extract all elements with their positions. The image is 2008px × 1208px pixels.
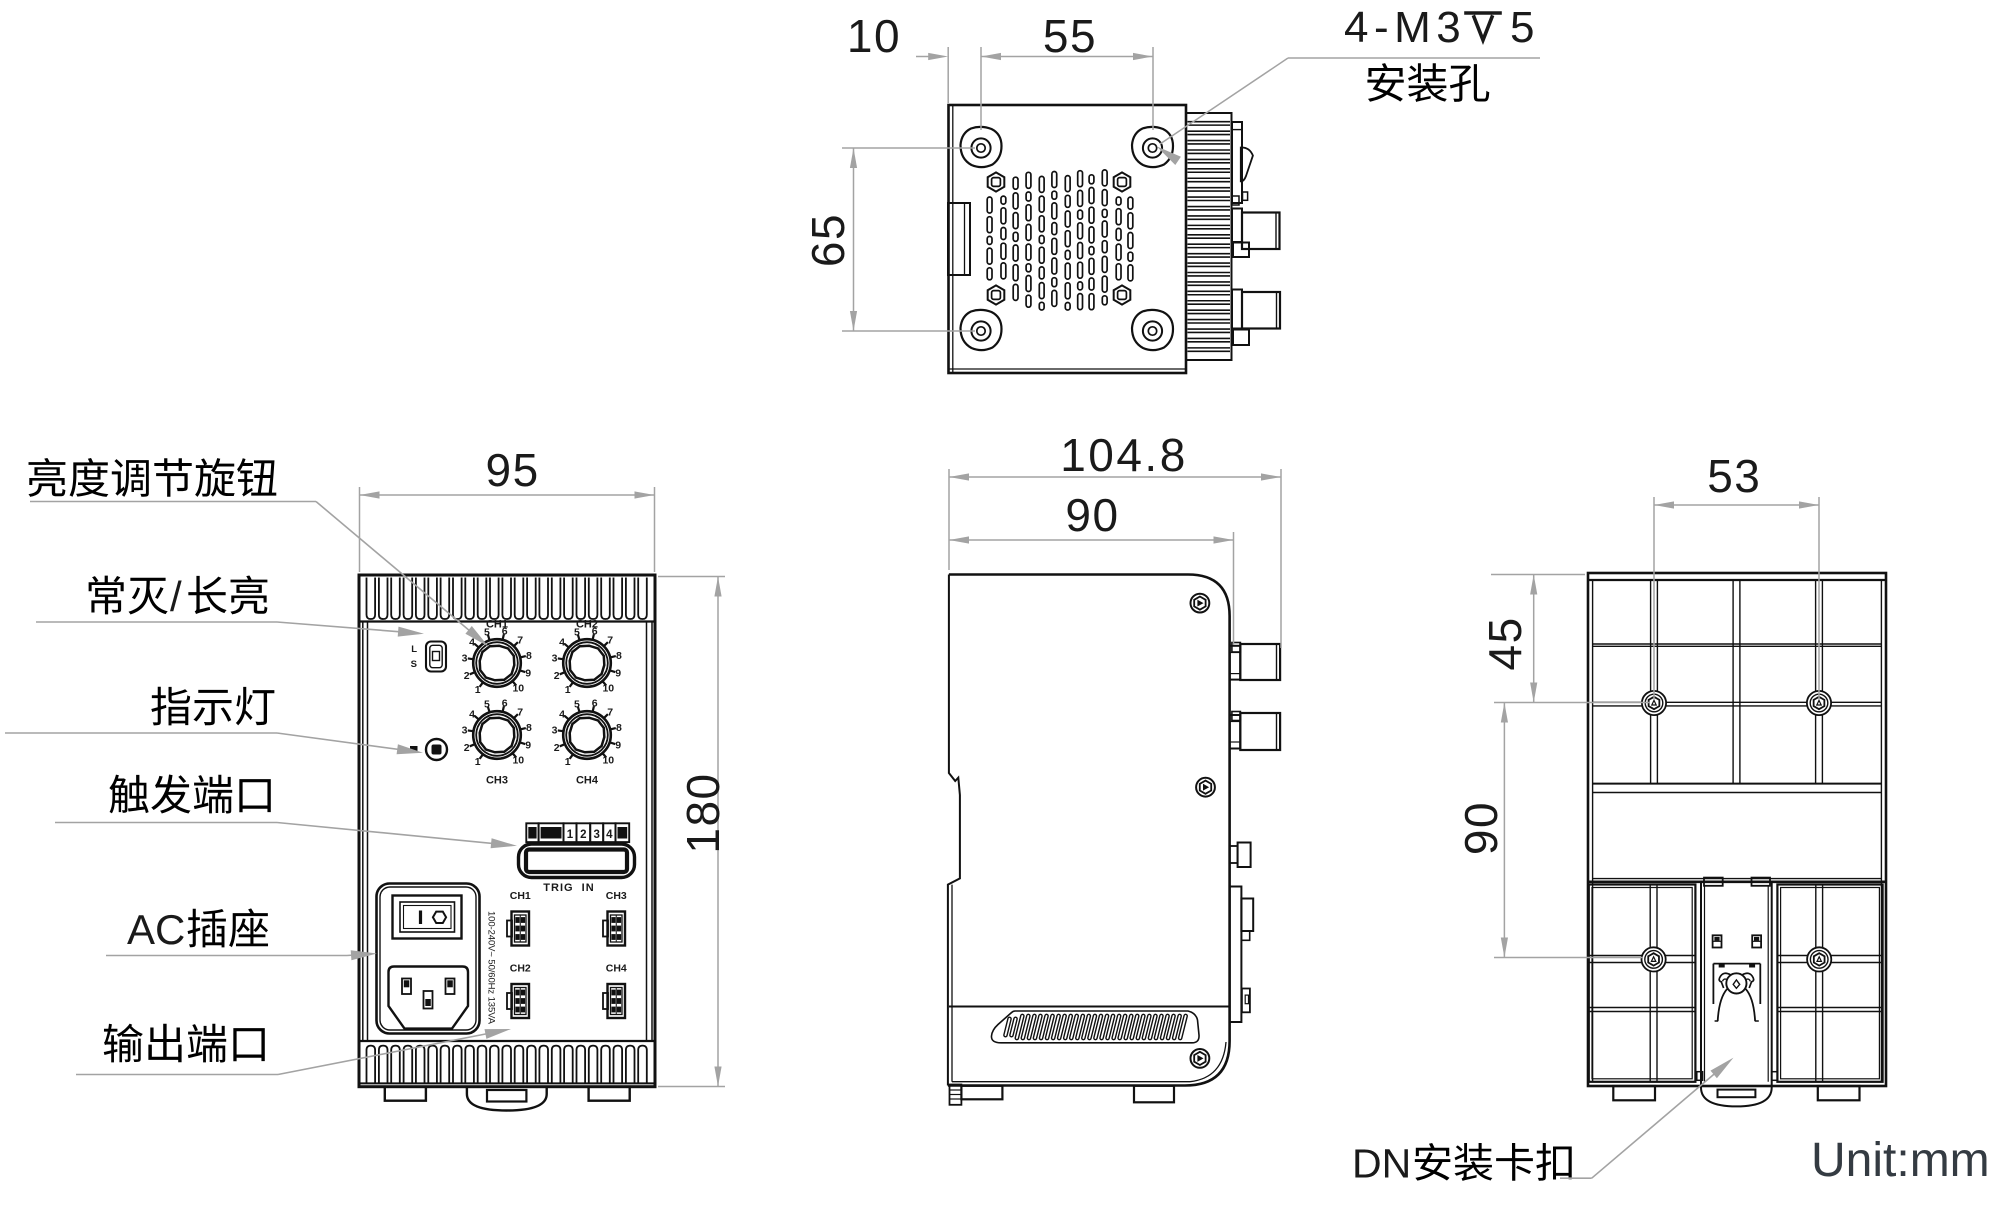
svg-text:S: S <box>411 659 417 670</box>
svg-text:10: 10 <box>512 755 524 767</box>
svg-text:3: 3 <box>462 653 468 665</box>
svg-text:65: 65 <box>802 213 854 267</box>
svg-text:7: 7 <box>517 634 523 646</box>
svg-text:L: L <box>411 644 417 655</box>
svg-text:10: 10 <box>602 683 614 695</box>
svg-text:/: / <box>170 573 182 620</box>
svg-text:4: 4 <box>559 636 565 648</box>
svg-text:180: 180 <box>677 772 729 853</box>
svg-text:3: 3 <box>593 829 599 841</box>
svg-text:90: 90 <box>1455 801 1507 855</box>
svg-text:1: 1 <box>475 756 481 768</box>
svg-text:10: 10 <box>602 755 614 767</box>
svg-text:53: 53 <box>1707 450 1761 502</box>
svg-text:2: 2 <box>554 670 560 682</box>
svg-text:2: 2 <box>464 742 470 754</box>
svg-text:6: 6 <box>592 698 598 710</box>
svg-text:4-M3: 4-M3 <box>1344 3 1466 52</box>
svg-text:CH4: CH4 <box>606 963 627 975</box>
svg-text:8: 8 <box>526 650 532 662</box>
svg-text:3: 3 <box>462 725 468 737</box>
svg-text:TRIG IN: TRIG IN <box>543 882 594 894</box>
svg-text:7: 7 <box>517 706 523 718</box>
svg-text:7: 7 <box>607 706 613 718</box>
svg-text:5: 5 <box>574 698 580 710</box>
svg-text:4: 4 <box>469 708 475 720</box>
svg-text:1: 1 <box>475 684 481 696</box>
svg-text:2: 2 <box>580 829 586 841</box>
svg-text:AC: AC <box>127 906 185 953</box>
svg-text:10: 10 <box>512 683 524 695</box>
svg-text:CH2: CH2 <box>510 963 531 975</box>
svg-text:1: 1 <box>565 684 571 696</box>
svg-text:CH3: CH3 <box>606 890 627 902</box>
svg-text:DN: DN <box>1352 1141 1411 1187</box>
svg-text:2: 2 <box>554 742 560 754</box>
svg-text:8: 8 <box>616 722 622 734</box>
svg-text:5: 5 <box>1510 3 1534 52</box>
svg-text:9: 9 <box>615 668 621 680</box>
svg-text:CH4: CH4 <box>576 775 599 787</box>
svg-text:CH2: CH2 <box>576 619 598 631</box>
svg-text:9: 9 <box>525 740 531 752</box>
svg-text:45: 45 <box>1479 616 1531 670</box>
svg-text:CH1: CH1 <box>510 890 531 902</box>
svg-text:100-240V~ 50/60Hz 135VA: 100-240V~ 50/60Hz 135VA <box>486 911 497 1025</box>
svg-text:4: 4 <box>559 708 565 720</box>
svg-text:8: 8 <box>616 650 622 662</box>
svg-text:9: 9 <box>525 668 531 680</box>
svg-text:7: 7 <box>607 634 613 646</box>
svg-text:3: 3 <box>552 725 558 737</box>
svg-text:CH1: CH1 <box>486 619 508 631</box>
svg-text:9: 9 <box>615 740 621 752</box>
svg-text:5: 5 <box>484 698 490 710</box>
svg-text:1: 1 <box>567 829 574 841</box>
svg-text:90: 90 <box>1065 489 1119 541</box>
svg-text:2: 2 <box>464 670 470 682</box>
svg-text:3: 3 <box>552 653 558 665</box>
svg-text:CH3: CH3 <box>486 775 508 787</box>
svg-text:10: 10 <box>847 10 901 62</box>
svg-text:8: 8 <box>526 722 532 734</box>
svg-text:55: 55 <box>1043 10 1097 62</box>
svg-text:1: 1 <box>565 756 571 768</box>
svg-text:6: 6 <box>502 698 508 710</box>
svg-text:4: 4 <box>606 829 613 841</box>
svg-text:104.8: 104.8 <box>1060 429 1188 481</box>
svg-text:95: 95 <box>486 444 540 496</box>
svg-text:Unit:mm: Unit:mm <box>1811 1134 1990 1187</box>
